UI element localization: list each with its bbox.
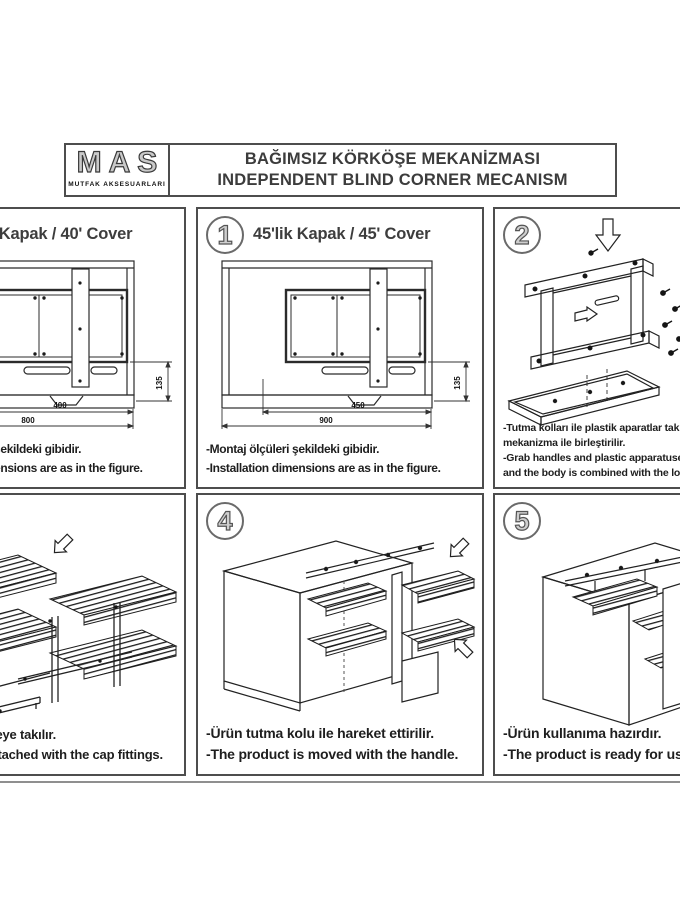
title-turkish: BAĞIMSIZ KÖRKÖŞE MEKANİZMASI [245,149,540,170]
panel-title: 45'lik Kapak / 45' Cover [253,225,430,244]
panel-title: 40'lik Kapak / 40' Cover [0,225,132,244]
dim-height: 135 [453,376,462,390]
brand-name: MAS [66,147,168,179]
base-tray [509,371,659,425]
caption-tr: -Ürün tutma kolu ile hareket ettirilir. [206,723,458,744]
caption-tr: -Montaj ölçüleri şekildeki gibidir. [206,440,441,459]
brand-logo: MAS MUTFAK AKSESUARLARI [64,143,170,197]
front-view-drawing: 135 450 900 [198,257,484,435]
dim-height: 135 [155,376,164,390]
dim-inner: 400 [53,401,67,410]
caption-en: -Installation dimensions are as in the f… [206,459,441,478]
page-border-bottom [0,781,680,783]
basket-assembly-drawing [0,521,186,747]
interior-baskets [308,583,386,656]
caption-en-2: and the body is combined with the lower … [503,466,680,481]
caption-tr: -Ürün kullanıma hazırdır. [503,723,680,744]
upper-frame [525,259,680,369]
cabinet-pullout-drawing [198,531,484,735]
panel-step-5: 5 -Ürün kullanıma h [493,493,680,776]
down-arrow-icon [596,219,620,251]
panel-caption: -Montaj ölçüleri şekildeki gibidir. -Ins… [0,440,143,478]
caption-en-1: -Grab handles and plastic apparatuses ar… [503,451,680,466]
panel-step-3: -Sepetler gövdeye takılır. -Baskets are … [0,493,186,776]
caption-en: -Baskets are attached with the cap fitti… [0,745,163,765]
panel-cover-45: 1 45'lik Kapak / 45' Cover [196,207,484,489]
fastener-dots [533,249,680,363]
title-english: INDEPENDENT BLIND CORNER MECANISM [217,170,567,191]
dim-outer: 800 [21,416,35,425]
front-view-drawing: 135 400 800 [0,257,186,435]
exploded-assembly-drawing [495,217,680,429]
move-arrow-icon [445,535,472,562]
caption-en: -The product is moved with the handle. [206,744,458,765]
direction-arrow-icon [49,531,76,558]
step-number-badge: 1 [206,216,244,254]
panel-step-2: 2 [493,207,680,489]
caption-tr: -Sepetler gövdeye takılır. [0,725,163,745]
pulled-baskets [402,571,474,702]
panel-caption: -Montaj ölçüleri şekildeki gibidir. -Ins… [206,440,441,478]
panel-step-4: 4 [196,493,484,776]
caption-tr-2: mekanizma ile birleştirilir. [503,436,680,451]
brand-subtitle: MUTFAK AKSESUARLARI [66,181,168,188]
dim-inner: 450 [351,401,365,410]
panel-caption: -Ürün kullanıma hazırdır. -The product i… [503,723,680,765]
document-title: BAĞIMSIZ KÖRKÖŞE MEKANİZMASI INDEPENDENT… [168,143,617,197]
caption-tr-1: -Tutma kolları ile plastik aparatlar tak… [503,421,680,436]
cabinet-door [663,581,680,709]
panel-cover-40: 40'lik Kapak / 40' Cover [0,207,186,489]
finished-cabinet-drawing [495,525,680,735]
wire-baskets [0,555,176,679]
panel-caption: -Ürün tutma kolu ile hareket ettirilir. … [206,723,458,765]
dim-outer: 900 [319,416,333,425]
caption-tr: -Montaj ölçüleri şekildeki gibidir. [0,440,143,459]
cabinet-body [543,543,680,725]
panel-caption: -Tutma kolları ile plastik aparatlar tak… [503,421,680,481]
panel-caption: -Sepetler gövdeye takılır. -Baskets are … [0,725,163,765]
caption-en: -Installation dimensions are as in the f… [0,459,143,478]
cabinet-body [224,541,412,711]
caption-en: -The product is ready for use. [503,744,680,765]
